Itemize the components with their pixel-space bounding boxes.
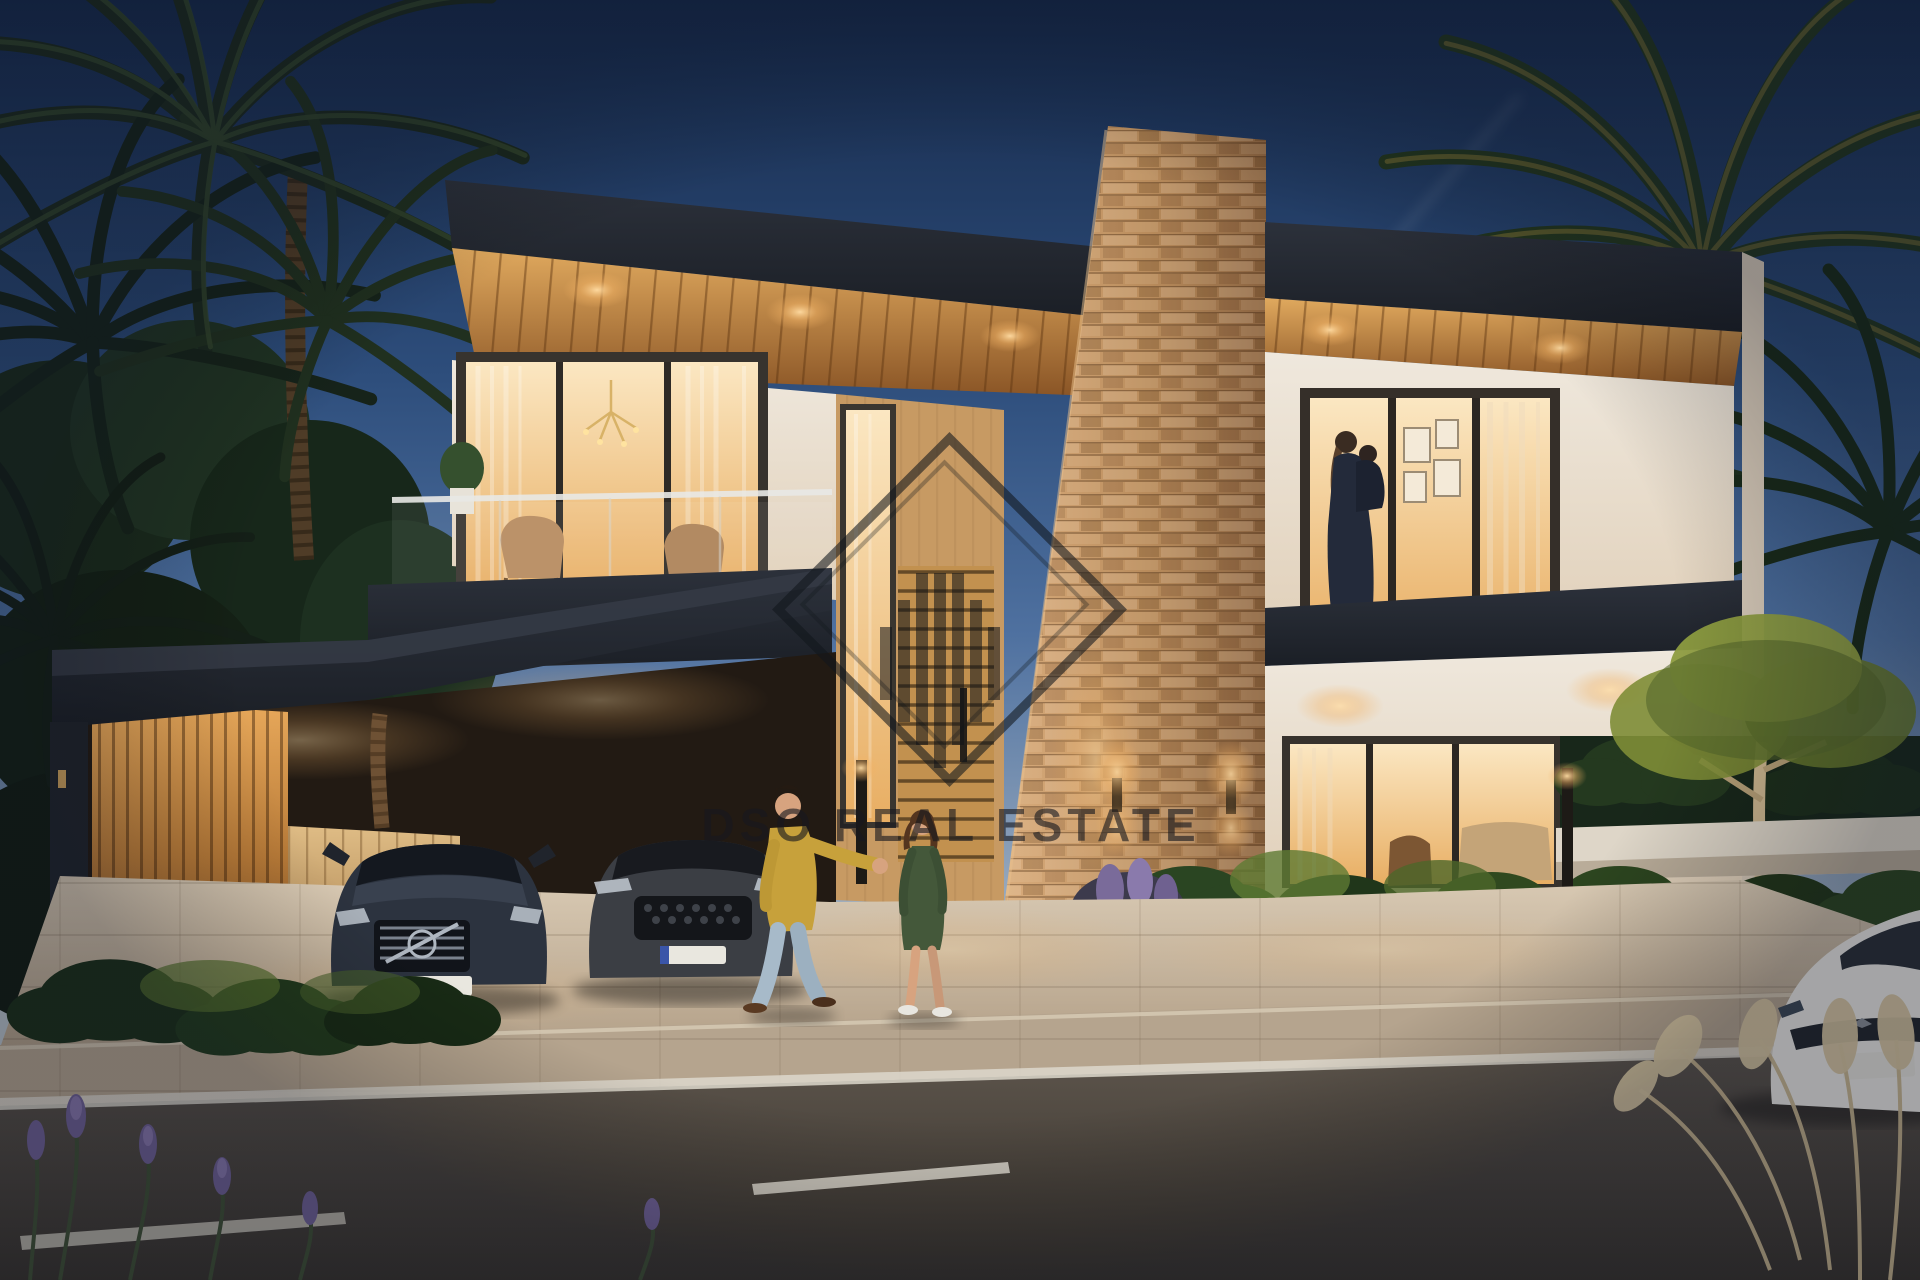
vignette — [0, 0, 1920, 1280]
scene-illustration — [0, 0, 1920, 1280]
villa-render: DSO REAL ESTATE — [0, 0, 1920, 1280]
